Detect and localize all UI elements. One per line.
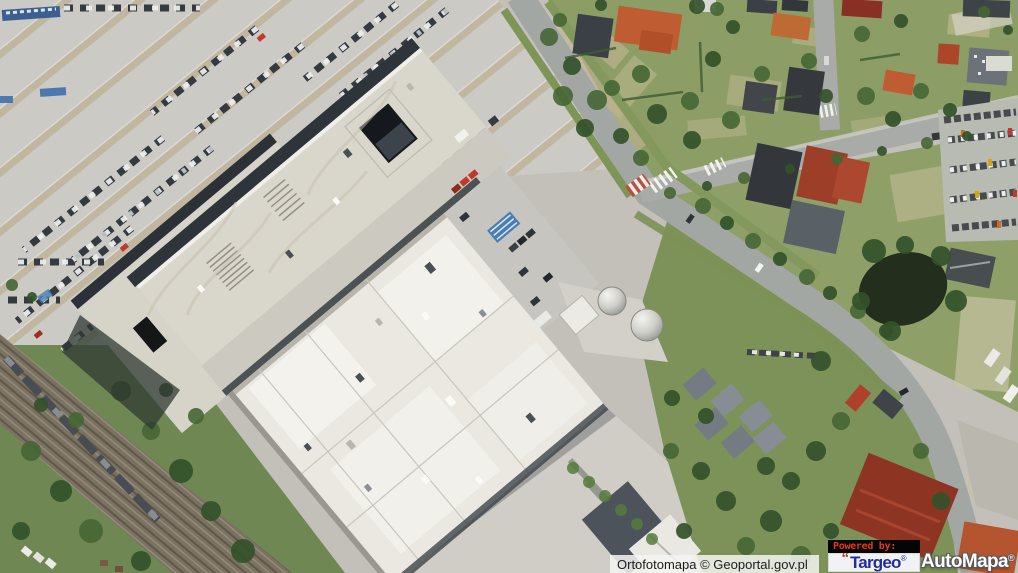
attribution-text: Ortofotomapa © Geoportal.gov.pl [617, 557, 808, 572]
targeo-logo: “ Targeo ® [828, 553, 920, 572]
automapa-registered-mark: ® [1008, 553, 1015, 563]
targeo-logo-text: Targeo [850, 553, 901, 572]
aerial-photo-canvas [0, 0, 1018, 573]
attribution-bar: Ortofotomapa © Geoportal.gov.pl [610, 555, 819, 573]
targeo-quote-icon: “ [841, 554, 849, 564]
automapa-logo: AutoMapa ® [921, 550, 1015, 573]
targeo-registered-mark: ® [901, 555, 907, 563]
automapa-logo-text: AutoMapa [921, 550, 1008, 573]
map-viewport[interactable]: Ortofotomapa © Geoportal.gov.pl Powered … [0, 0, 1018, 573]
